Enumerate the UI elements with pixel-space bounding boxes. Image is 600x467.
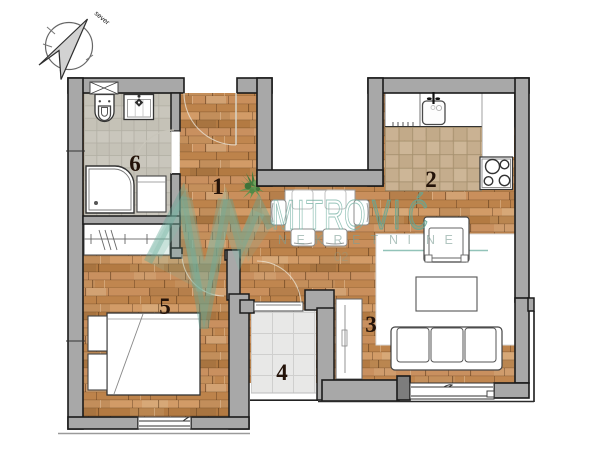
svg-text:3: 3 [365, 312, 377, 337]
svg-text:5: 5 [159, 294, 171, 319]
svg-text:VIĆ: VIĆ [372, 191, 428, 238]
svg-text:02: 02 [334, 249, 348, 264]
svg-text:6: 6 [129, 151, 141, 176]
svg-text:1: 1 [212, 174, 224, 199]
svg-text:2: 2 [425, 167, 437, 192]
svg-text:4: 4 [276, 360, 288, 385]
